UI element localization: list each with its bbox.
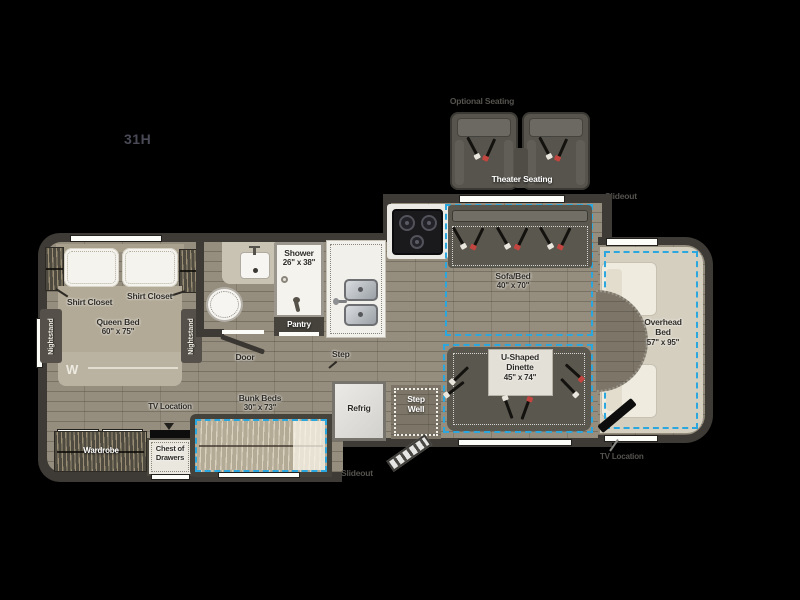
sofa-backrest <box>452 210 588 222</box>
bunk-blanket <box>293 421 325 470</box>
shower-drain <box>281 276 288 283</box>
shower-label: Shower 26" x 38" <box>283 248 315 268</box>
burner-icon <box>421 215 437 231</box>
floorplan-canvas: 31H Optional Seating Theater Seating Sli… <box>0 0 800 600</box>
toilet-seat-dots <box>210 291 239 318</box>
pantry-label: Pantry <box>287 320 311 330</box>
tv-mid <box>150 430 192 438</box>
showerhead-icon <box>293 297 300 303</box>
tv-location-cab-label: TV Location <box>600 452 644 462</box>
pillow <box>64 248 119 287</box>
tv-arrow <box>164 423 174 430</box>
bath-faucet-icon <box>249 246 260 248</box>
shirt-closet-right-label: Shirt Closet <box>127 291 172 301</box>
bath-sink <box>240 252 270 279</box>
shirt-closet-left <box>45 247 64 291</box>
pantry-window <box>279 332 319 336</box>
theater-seating-label: Theater Seating <box>492 174 553 184</box>
winnebago-logo: W <box>66 362 78 377</box>
burner-icon <box>399 215 415 231</box>
cab-top-window <box>606 238 658 246</box>
model-number: 31H <box>124 131 151 148</box>
refrig-label: Refrig <box>347 403 370 413</box>
tv-location-mid-label: TV Location <box>148 402 192 412</box>
step-label: Step <box>332 349 350 359</box>
shirt-closet-left-label: Shirt Closet <box>67 297 112 307</box>
slideout-rear-label: Slideout <box>341 468 373 478</box>
kitchen-faucet-icon <box>333 298 339 305</box>
sofa-window <box>459 195 565 203</box>
bunk-label: Bunk Beds 30" x 73" <box>239 393 282 413</box>
bedroom-window <box>70 235 162 242</box>
sink-drain <box>358 312 363 317</box>
wardrobe-label: Wardrobe <box>83 446 118 456</box>
bath-wall-vertical <box>196 233 204 337</box>
dinette-window <box>458 439 572 446</box>
door-threshold <box>222 330 264 334</box>
chest-label: Chest of Drawers <box>156 444 184 462</box>
overhead-bed-label: Overhead Bed 57" x 95" <box>644 317 682 347</box>
burner-icon <box>410 235 424 249</box>
door-label: Door <box>235 352 254 362</box>
nightstand-left-label: Nightstand <box>48 318 55 355</box>
step-well-label: Step Well <box>407 394 425 415</box>
bath-wall-bottom <box>196 329 224 337</box>
nightstand-right-label: Nightstand <box>188 318 195 355</box>
sink-drain <box>358 287 363 292</box>
sofa-label: Sofa/Bed 40" x 70" <box>495 271 530 291</box>
nightstand-left: Nightstand <box>40 309 62 363</box>
pillow <box>122 248 178 287</box>
bath-sink-drain <box>253 268 258 273</box>
dinette-label: U-Shaped Dinette 45" x 74" <box>501 352 539 382</box>
bed-seam-line <box>88 367 178 369</box>
queen-bed-label: Queen Bed 60" x 75" <box>96 317 139 337</box>
cab-bottom-window <box>604 435 658 442</box>
bunk-bottom-slot <box>218 472 300 478</box>
chest-bottom-slot <box>151 474 190 480</box>
